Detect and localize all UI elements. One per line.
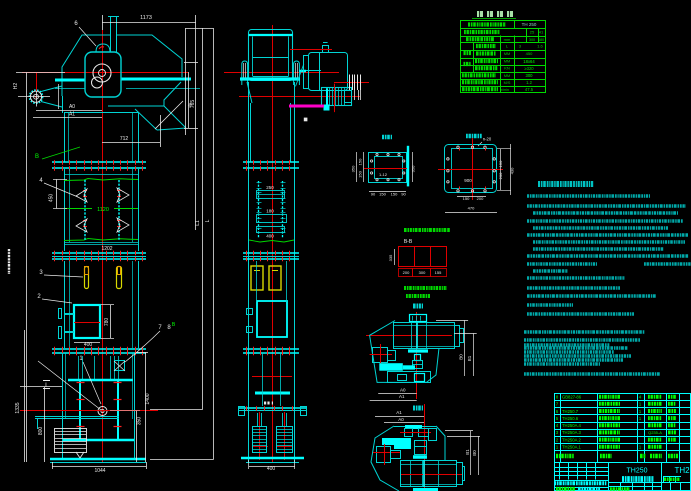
svg-text:B: B bbox=[35, 154, 39, 160]
svg-text:450: 450 bbox=[526, 51, 533, 56]
svg-text:A0: A0 bbox=[398, 417, 404, 422]
svg-text:200: 200 bbox=[477, 196, 484, 201]
svg-text:1120: 1120 bbox=[97, 207, 109, 213]
svg-text:L: L bbox=[205, 219, 211, 222]
svg-text:B1: B1 bbox=[465, 449, 470, 455]
svg-text:n-20: n-20 bbox=[483, 137, 492, 142]
svg-text:A0: A0 bbox=[69, 104, 75, 110]
svg-text:480: 480 bbox=[538, 38, 544, 42]
svg-text:Q235-A: Q235-A bbox=[648, 430, 662, 435]
svg-text:mm: mm bbox=[504, 37, 511, 42]
svg-text:A1: A1 bbox=[396, 410, 402, 415]
svg-text:350: 350 bbox=[351, 165, 356, 172]
svg-text:150: 150 bbox=[358, 170, 363, 177]
svg-text:765: 765 bbox=[190, 100, 196, 109]
svg-text:TH250.7: TH250.7 bbox=[562, 409, 579, 414]
svg-text:L1: L1 bbox=[195, 220, 201, 226]
svg-text:KN: KN bbox=[504, 66, 510, 71]
svg-text:47.5: 47.5 bbox=[525, 87, 534, 92]
svg-text:1400: 1400 bbox=[145, 393, 151, 404]
svg-text:400: 400 bbox=[266, 234, 274, 239]
svg-text:MM: MM bbox=[504, 74, 510, 78]
svg-text:B-B: B-B bbox=[404, 239, 413, 245]
svg-text:150: 150 bbox=[463, 196, 470, 201]
svg-text:300: 300 bbox=[526, 73, 534, 78]
svg-text:MM: MM bbox=[504, 52, 510, 56]
svg-text:470: 470 bbox=[468, 206, 475, 211]
svg-text:150: 150 bbox=[498, 160, 503, 167]
svg-text:r/min: r/min bbox=[501, 88, 509, 92]
svg-text:A0: A0 bbox=[400, 388, 406, 393]
svg-text:TH250: TH250 bbox=[626, 468, 647, 475]
svg-text:1.2: 1.2 bbox=[526, 80, 532, 85]
svg-text:1173: 1173 bbox=[140, 15, 152, 21]
svg-text:B0: B0 bbox=[459, 354, 464, 360]
svg-text:TH250A.4: TH250A.4 bbox=[562, 423, 582, 428]
svg-text:18x64: 18x64 bbox=[523, 59, 535, 64]
svg-text:TH 250: TH 250 bbox=[522, 22, 537, 27]
svg-text:180: 180 bbox=[266, 209, 274, 214]
svg-text:A1: A1 bbox=[69, 112, 75, 118]
svg-text:TH250A.3: TH250A.3 bbox=[562, 430, 582, 435]
svg-text:350: 350 bbox=[137, 417, 143, 426]
svg-text:90: 90 bbox=[371, 192, 376, 197]
svg-text:150: 150 bbox=[358, 158, 363, 165]
svg-text:200: 200 bbox=[498, 172, 503, 179]
svg-text:1.6: 1.6 bbox=[537, 44, 543, 49]
svg-text:150: 150 bbox=[379, 192, 386, 197]
svg-text:B0: B0 bbox=[472, 450, 477, 456]
svg-text:1-12: 1-12 bbox=[379, 172, 388, 177]
svg-text:TH250.6: TH250.6 bbox=[562, 416, 579, 421]
svg-text:A1: A1 bbox=[399, 394, 405, 399]
svg-text:300: 300 bbox=[529, 38, 535, 42]
svg-text:TH250A.1: TH250A.1 bbox=[562, 445, 582, 450]
svg-text:250: 250 bbox=[266, 185, 274, 190]
svg-text:350: 350 bbox=[411, 165, 416, 172]
svg-text:TH2: TH2 bbox=[674, 466, 690, 475]
svg-text:GB827-86: GB827-86 bbox=[562, 395, 582, 400]
svg-text:1044: 1044 bbox=[94, 468, 105, 474]
svg-text:H2: H2 bbox=[13, 83, 19, 90]
svg-text:900: 900 bbox=[464, 178, 472, 183]
svg-text:1335: 1335 bbox=[15, 402, 21, 413]
svg-text:MM: MM bbox=[504, 60, 510, 64]
svg-text:335: 335 bbox=[388, 254, 393, 261]
svg-text:25: 25 bbox=[530, 30, 535, 35]
svg-text:800: 800 bbox=[38, 427, 44, 436]
svg-text:155: 155 bbox=[435, 270, 442, 275]
svg-text:M/S: M/S bbox=[504, 81, 511, 85]
svg-text:780: 780 bbox=[104, 318, 110, 327]
svg-text:B1: B1 bbox=[467, 355, 472, 361]
svg-text:300: 300 bbox=[419, 270, 426, 275]
svg-text:150: 150 bbox=[391, 192, 398, 197]
svg-text:430: 430 bbox=[510, 167, 515, 174]
svg-text:1202: 1202 bbox=[101, 246, 112, 252]
svg-text:≥320: ≥320 bbox=[524, 66, 534, 71]
svg-text:200: 200 bbox=[403, 270, 410, 275]
svg-text:712: 712 bbox=[120, 136, 129, 142]
svg-text:400: 400 bbox=[267, 466, 276, 472]
svg-text:90: 90 bbox=[401, 192, 406, 197]
svg-text:TH250A.2: TH250A.2 bbox=[562, 437, 582, 442]
svg-text:450: 450 bbox=[49, 194, 55, 203]
svg-text:41: 41 bbox=[539, 30, 544, 35]
